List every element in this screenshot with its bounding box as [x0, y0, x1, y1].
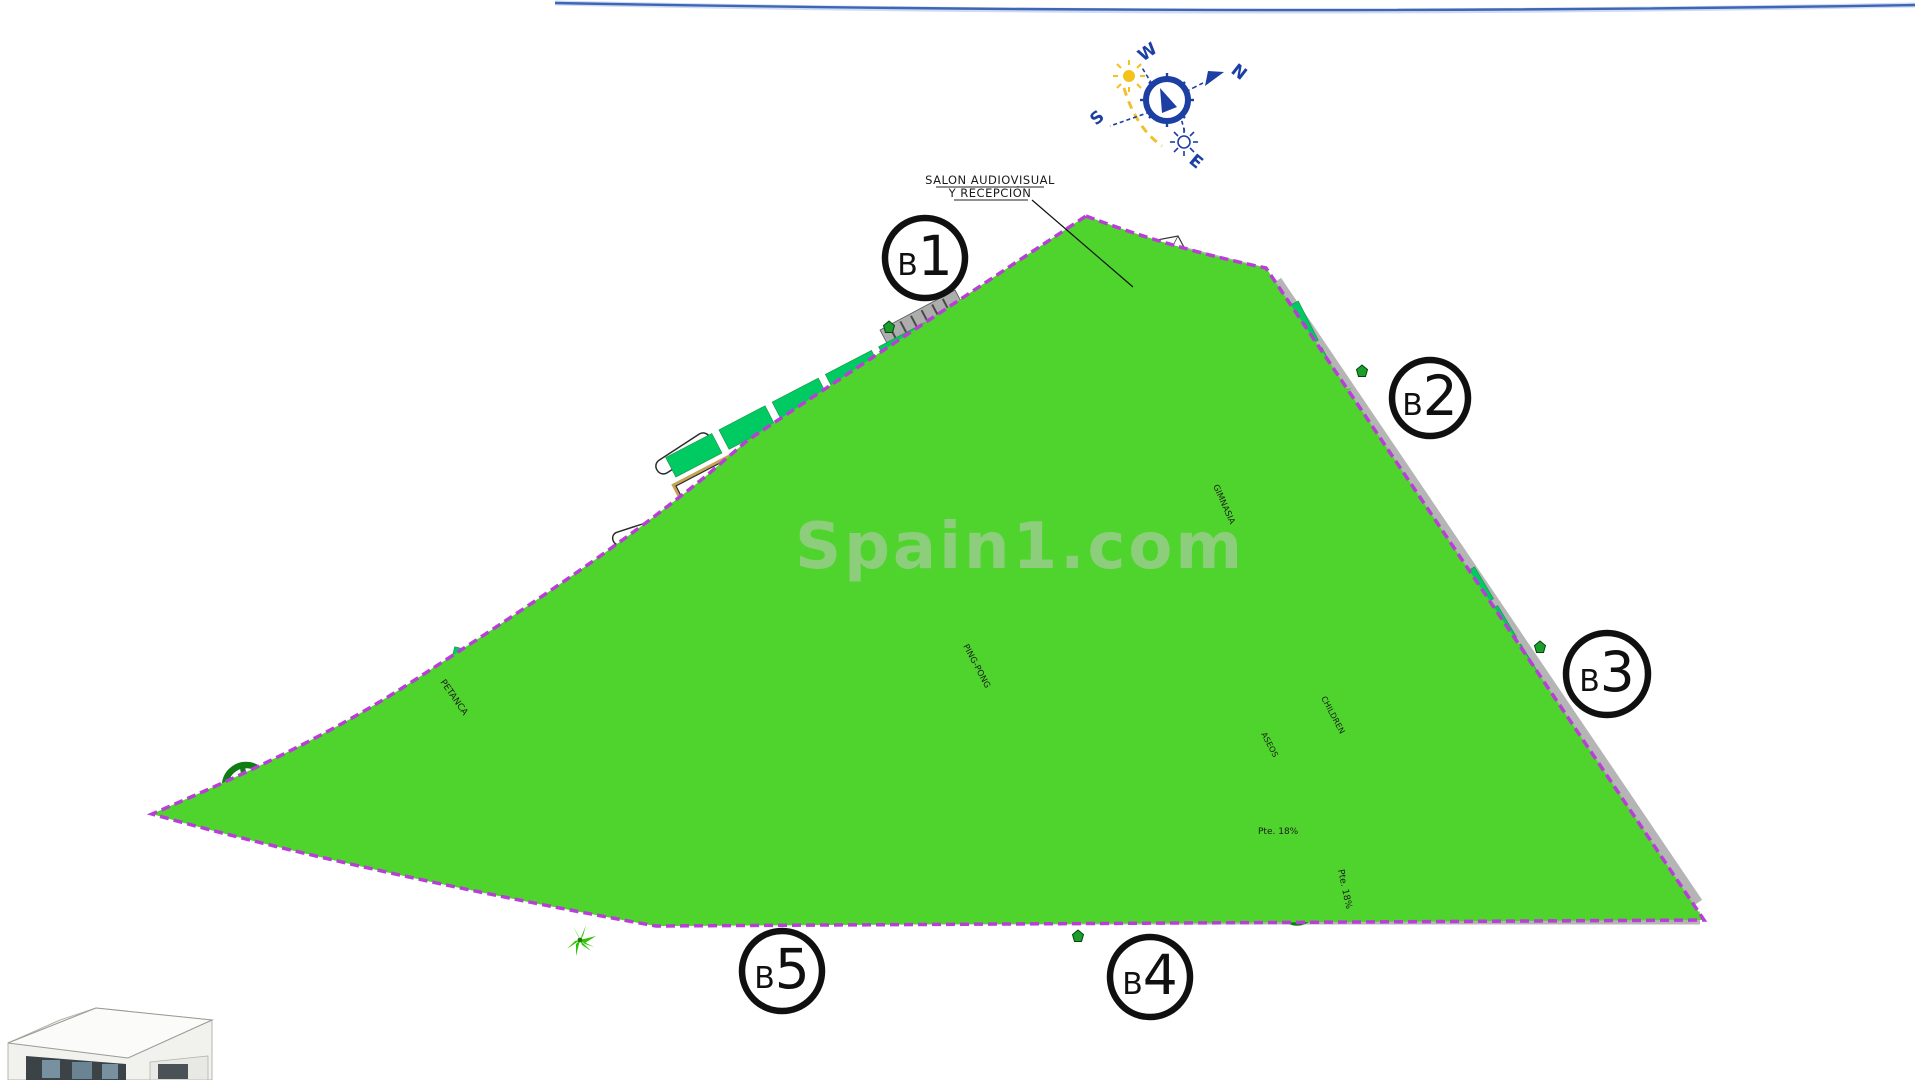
compass-n: N	[1227, 60, 1251, 85]
north-arrow	[1205, 71, 1224, 86]
compass-s: S	[1086, 107, 1108, 130]
site-plan: 0102030405060708091011121314151617181920…	[0, 0, 1920, 1080]
palm-tree-icon	[565, 925, 596, 956]
building-label-B1: B1	[885, 218, 965, 298]
building-label-B4: B4	[1110, 937, 1190, 1017]
sun-icon	[1113, 60, 1145, 92]
watermark: Spain1.com	[795, 510, 1245, 584]
compass-rose: N W S E	[1086, 39, 1250, 173]
compass-w: W	[1134, 39, 1161, 66]
label-ramp-1: Pte. 18%	[1258, 827, 1299, 837]
compass-e: E	[1185, 151, 1207, 174]
building-label-B5: B5	[742, 931, 822, 1011]
salon-line1: SALON AUDIOVISUAL	[925, 173, 1055, 187]
top-arc-decoration	[555, 3, 1915, 11]
site-plan-svg: 0102030405060708091011121314151617181920…	[0, 0, 1920, 1080]
building-label-B3: B3	[1566, 633, 1648, 715]
corner-building-render	[8, 1008, 212, 1080]
compass-star-icon	[1170, 128, 1198, 156]
building-label-B2: B2	[1392, 360, 1468, 436]
